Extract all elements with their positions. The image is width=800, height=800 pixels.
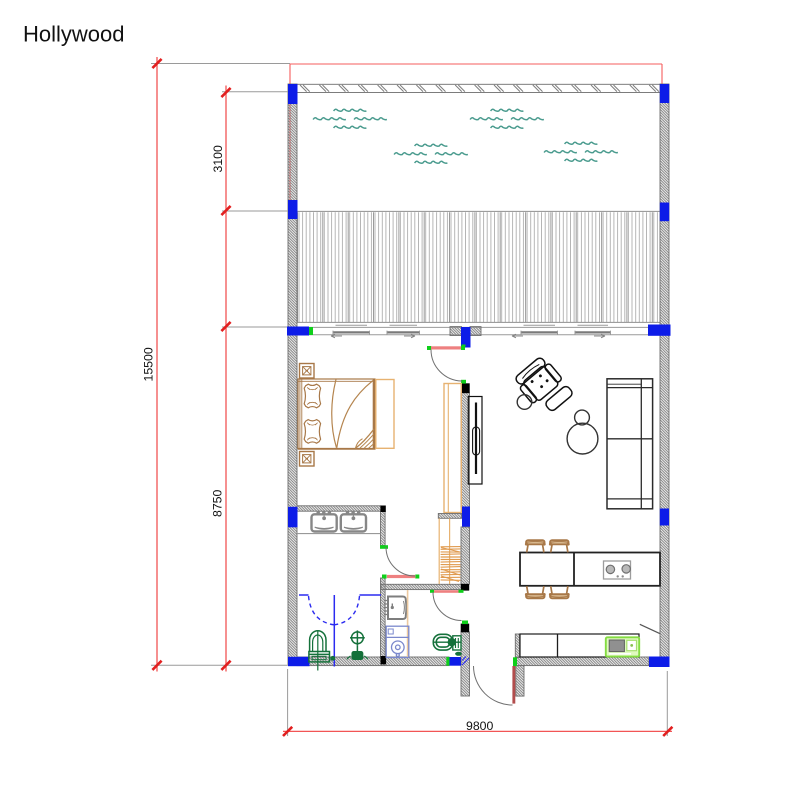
svg-text:Hollywood: Hollywood bbox=[23, 22, 125, 47]
svg-text:15500: 15500 bbox=[142, 347, 156, 381]
svg-text:9800: 9800 bbox=[466, 719, 494, 733]
svg-text:8750: 8750 bbox=[211, 489, 225, 517]
svg-text:3100: 3100 bbox=[211, 145, 225, 173]
